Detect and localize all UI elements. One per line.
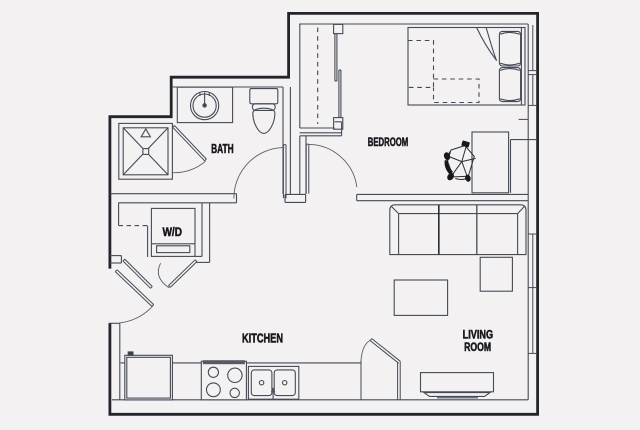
svg-text:KITCHEN: KITCHEN	[242, 330, 283, 345]
svg-text:ROOM: ROOM	[464, 340, 491, 354]
svg-text:BATH: BATH	[211, 141, 234, 156]
svg-text:W/D: W/D	[162, 225, 182, 239]
svg-text:BEDROOM: BEDROOM	[368, 135, 409, 149]
